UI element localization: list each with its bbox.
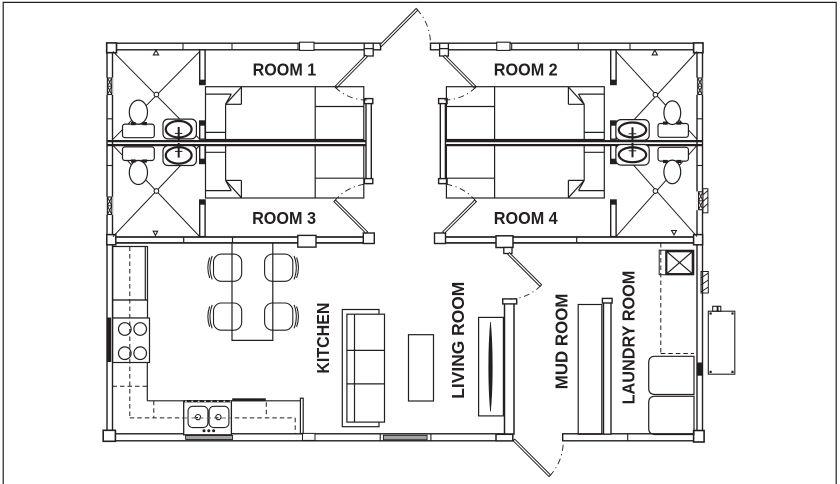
- svg-text:ROOM 3: ROOM 3: [252, 208, 316, 228]
- svg-text:LAUNDRY ROOM: LAUNDRY ROOM: [618, 271, 638, 405]
- svg-text:ROOM 1: ROOM 1: [253, 59, 317, 79]
- svg-text:ROOM 4: ROOM 4: [494, 208, 558, 228]
- svg-text:LIVING ROOM: LIVING ROOM: [448, 282, 468, 399]
- svg-text:KITCHEN: KITCHEN: [313, 303, 333, 374]
- svg-text:ROOM 2: ROOM 2: [494, 59, 558, 79]
- svg-text:MUD ROOM: MUD ROOM: [551, 294, 571, 390]
